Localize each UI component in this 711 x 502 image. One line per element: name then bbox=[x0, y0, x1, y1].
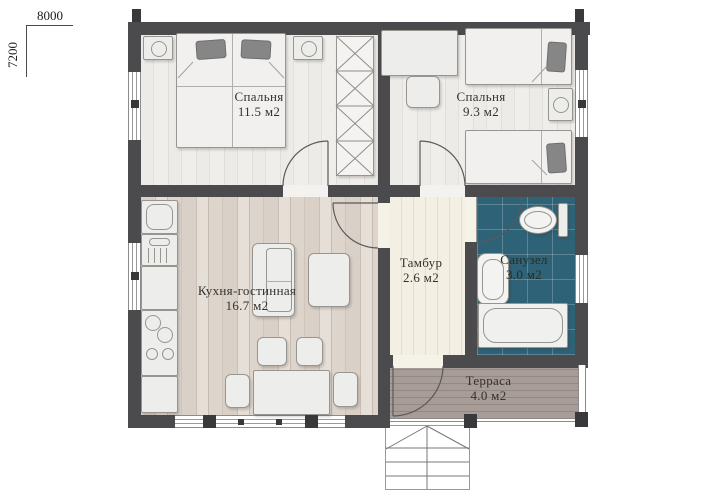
bathroom-window bbox=[575, 255, 588, 303]
nightstand bbox=[293, 36, 323, 60]
dish-rack-icon bbox=[149, 238, 170, 246]
window-mullion bbox=[203, 415, 216, 428]
cushion-divider bbox=[266, 281, 291, 282]
chimney-post-right bbox=[575, 9, 584, 22]
pillow bbox=[546, 41, 567, 72]
room-label-bathroom: Санузел 3.0 м2 bbox=[478, 252, 570, 282]
window-mullion bbox=[131, 100, 139, 108]
bathroom-door-opening bbox=[465, 197, 477, 242]
room-area: 3.0 м2 bbox=[478, 267, 570, 282]
lamp-icon bbox=[553, 97, 569, 113]
toilet-tank bbox=[558, 203, 568, 237]
kitchen-sink-cabinet bbox=[141, 200, 178, 234]
pillow bbox=[195, 39, 226, 60]
pillow bbox=[546, 142, 567, 173]
dimension-height-label: 7200 bbox=[5, 29, 21, 81]
burner-icon bbox=[146, 348, 158, 360]
pillow bbox=[241, 39, 272, 60]
kitchen-window-bottom bbox=[175, 415, 345, 428]
window-mullion bbox=[305, 415, 318, 428]
sink-icon bbox=[146, 204, 173, 230]
room-area: 4.0 м2 bbox=[441, 388, 536, 403]
toilet-bowl bbox=[519, 206, 557, 234]
blanket-edge bbox=[541, 131, 542, 183]
floor-plan: 8000 7200 bbox=[0, 0, 711, 502]
stove bbox=[141, 310, 178, 376]
dish-rack-cabinet bbox=[141, 234, 178, 266]
nightstand bbox=[548, 88, 573, 121]
terrace-edge-bottom bbox=[390, 418, 586, 422]
burner-icon bbox=[162, 348, 174, 360]
dining-chair bbox=[333, 372, 358, 407]
bathtub-basin bbox=[483, 308, 563, 343]
window-mullion bbox=[238, 419, 244, 425]
room-label-kitchen: Кухня-гостинная 16.7 м2 bbox=[177, 283, 317, 313]
kitchen-counter bbox=[141, 266, 178, 310]
bathtub bbox=[478, 303, 568, 348]
dining-chair bbox=[225, 374, 250, 408]
room-name: Спальня bbox=[199, 89, 319, 104]
bedroom-1-door-opening bbox=[283, 185, 328, 197]
blanket-edge bbox=[541, 29, 542, 84]
dimension-height-line bbox=[26, 25, 27, 77]
room-area: 9.3 м2 bbox=[421, 104, 541, 119]
room-name: Спальня bbox=[421, 89, 541, 104]
wardrobe bbox=[336, 36, 374, 176]
lamp-icon bbox=[151, 41, 167, 57]
dining-chair bbox=[296, 337, 323, 366]
rack-lines bbox=[148, 248, 172, 263]
entrance-steps bbox=[385, 425, 470, 490]
dimension-width-line bbox=[27, 25, 73, 26]
desk bbox=[381, 30, 458, 76]
terrace-post-middle bbox=[464, 414, 477, 428]
toilet-bowl-inner bbox=[524, 211, 552, 229]
room-label-bedroom-1: Спальня 11.5 м2 bbox=[199, 89, 319, 119]
terrace-post-corner bbox=[575, 412, 588, 427]
room-name: Санузел bbox=[478, 252, 570, 267]
room-area: 11.5 м2 bbox=[199, 104, 319, 119]
room-label-terrace: Терраса 4.0 м2 bbox=[441, 373, 536, 403]
dining-table bbox=[253, 370, 330, 415]
room-label-vestibule: Тамбур 2.6 м2 bbox=[381, 255, 461, 285]
room-name: Терраса bbox=[441, 373, 536, 388]
room-area: 16.7 м2 bbox=[177, 298, 317, 313]
room-area: 2.6 м2 bbox=[381, 270, 461, 285]
bedroom-2-door-opening bbox=[420, 185, 465, 197]
burner-icon bbox=[157, 327, 173, 343]
single-bed bbox=[465, 130, 572, 184]
chimney-post-left bbox=[132, 9, 141, 22]
lamp-icon bbox=[301, 41, 317, 57]
window-mullion bbox=[131, 272, 139, 280]
window-mullion bbox=[276, 419, 282, 425]
blanket-edge bbox=[177, 86, 285, 87]
terrace-edge-right bbox=[578, 365, 586, 418]
room-label-bedroom-2: Спальня 9.3 м2 bbox=[421, 89, 541, 119]
single-bed bbox=[465, 28, 572, 85]
kitchen-door-opening bbox=[378, 203, 390, 248]
entrance-door-opening bbox=[393, 355, 443, 368]
dining-chair bbox=[257, 337, 287, 366]
room-name: Тамбур bbox=[381, 255, 461, 270]
dimension-width-label: 8000 bbox=[27, 8, 73, 24]
window-mullion bbox=[578, 100, 586, 108]
kitchen-counter bbox=[141, 376, 178, 413]
room-name: Кухня-гостинная bbox=[177, 283, 317, 298]
nightstand bbox=[143, 36, 173, 60]
wall-middle-horizontal bbox=[141, 185, 575, 197]
